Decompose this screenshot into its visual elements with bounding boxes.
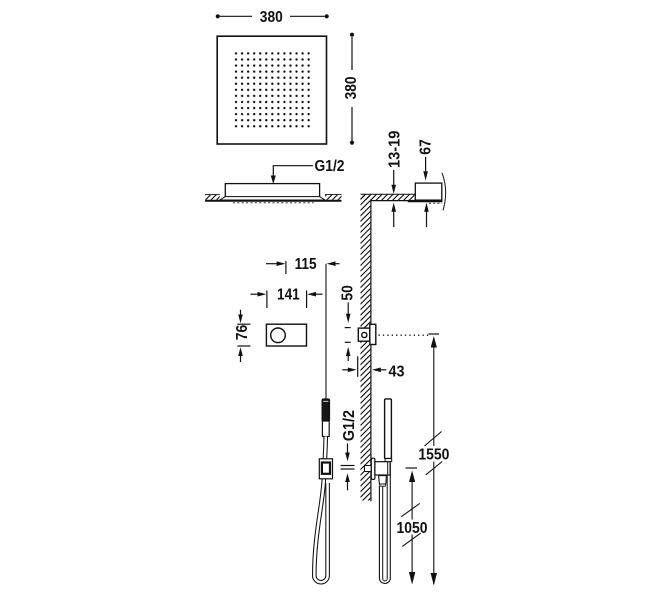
svg-text:1050: 1050 [397, 520, 428, 537]
svg-text:G1/2: G1/2 [315, 158, 345, 175]
svg-text:380: 380 [343, 76, 360, 99]
svg-text:76: 76 [234, 325, 251, 341]
svg-text:380: 380 [260, 9, 283, 26]
svg-text:141: 141 [277, 287, 300, 304]
svg-text:1550: 1550 [418, 446, 449, 463]
svg-text:G1/2: G1/2 [341, 410, 358, 441]
svg-text:13-19: 13-19 [386, 130, 403, 168]
svg-text:50: 50 [340, 285, 357, 301]
svg-text:43: 43 [389, 363, 405, 380]
svg-text:67: 67 [417, 139, 434, 155]
svg-text:115: 115 [295, 256, 317, 273]
